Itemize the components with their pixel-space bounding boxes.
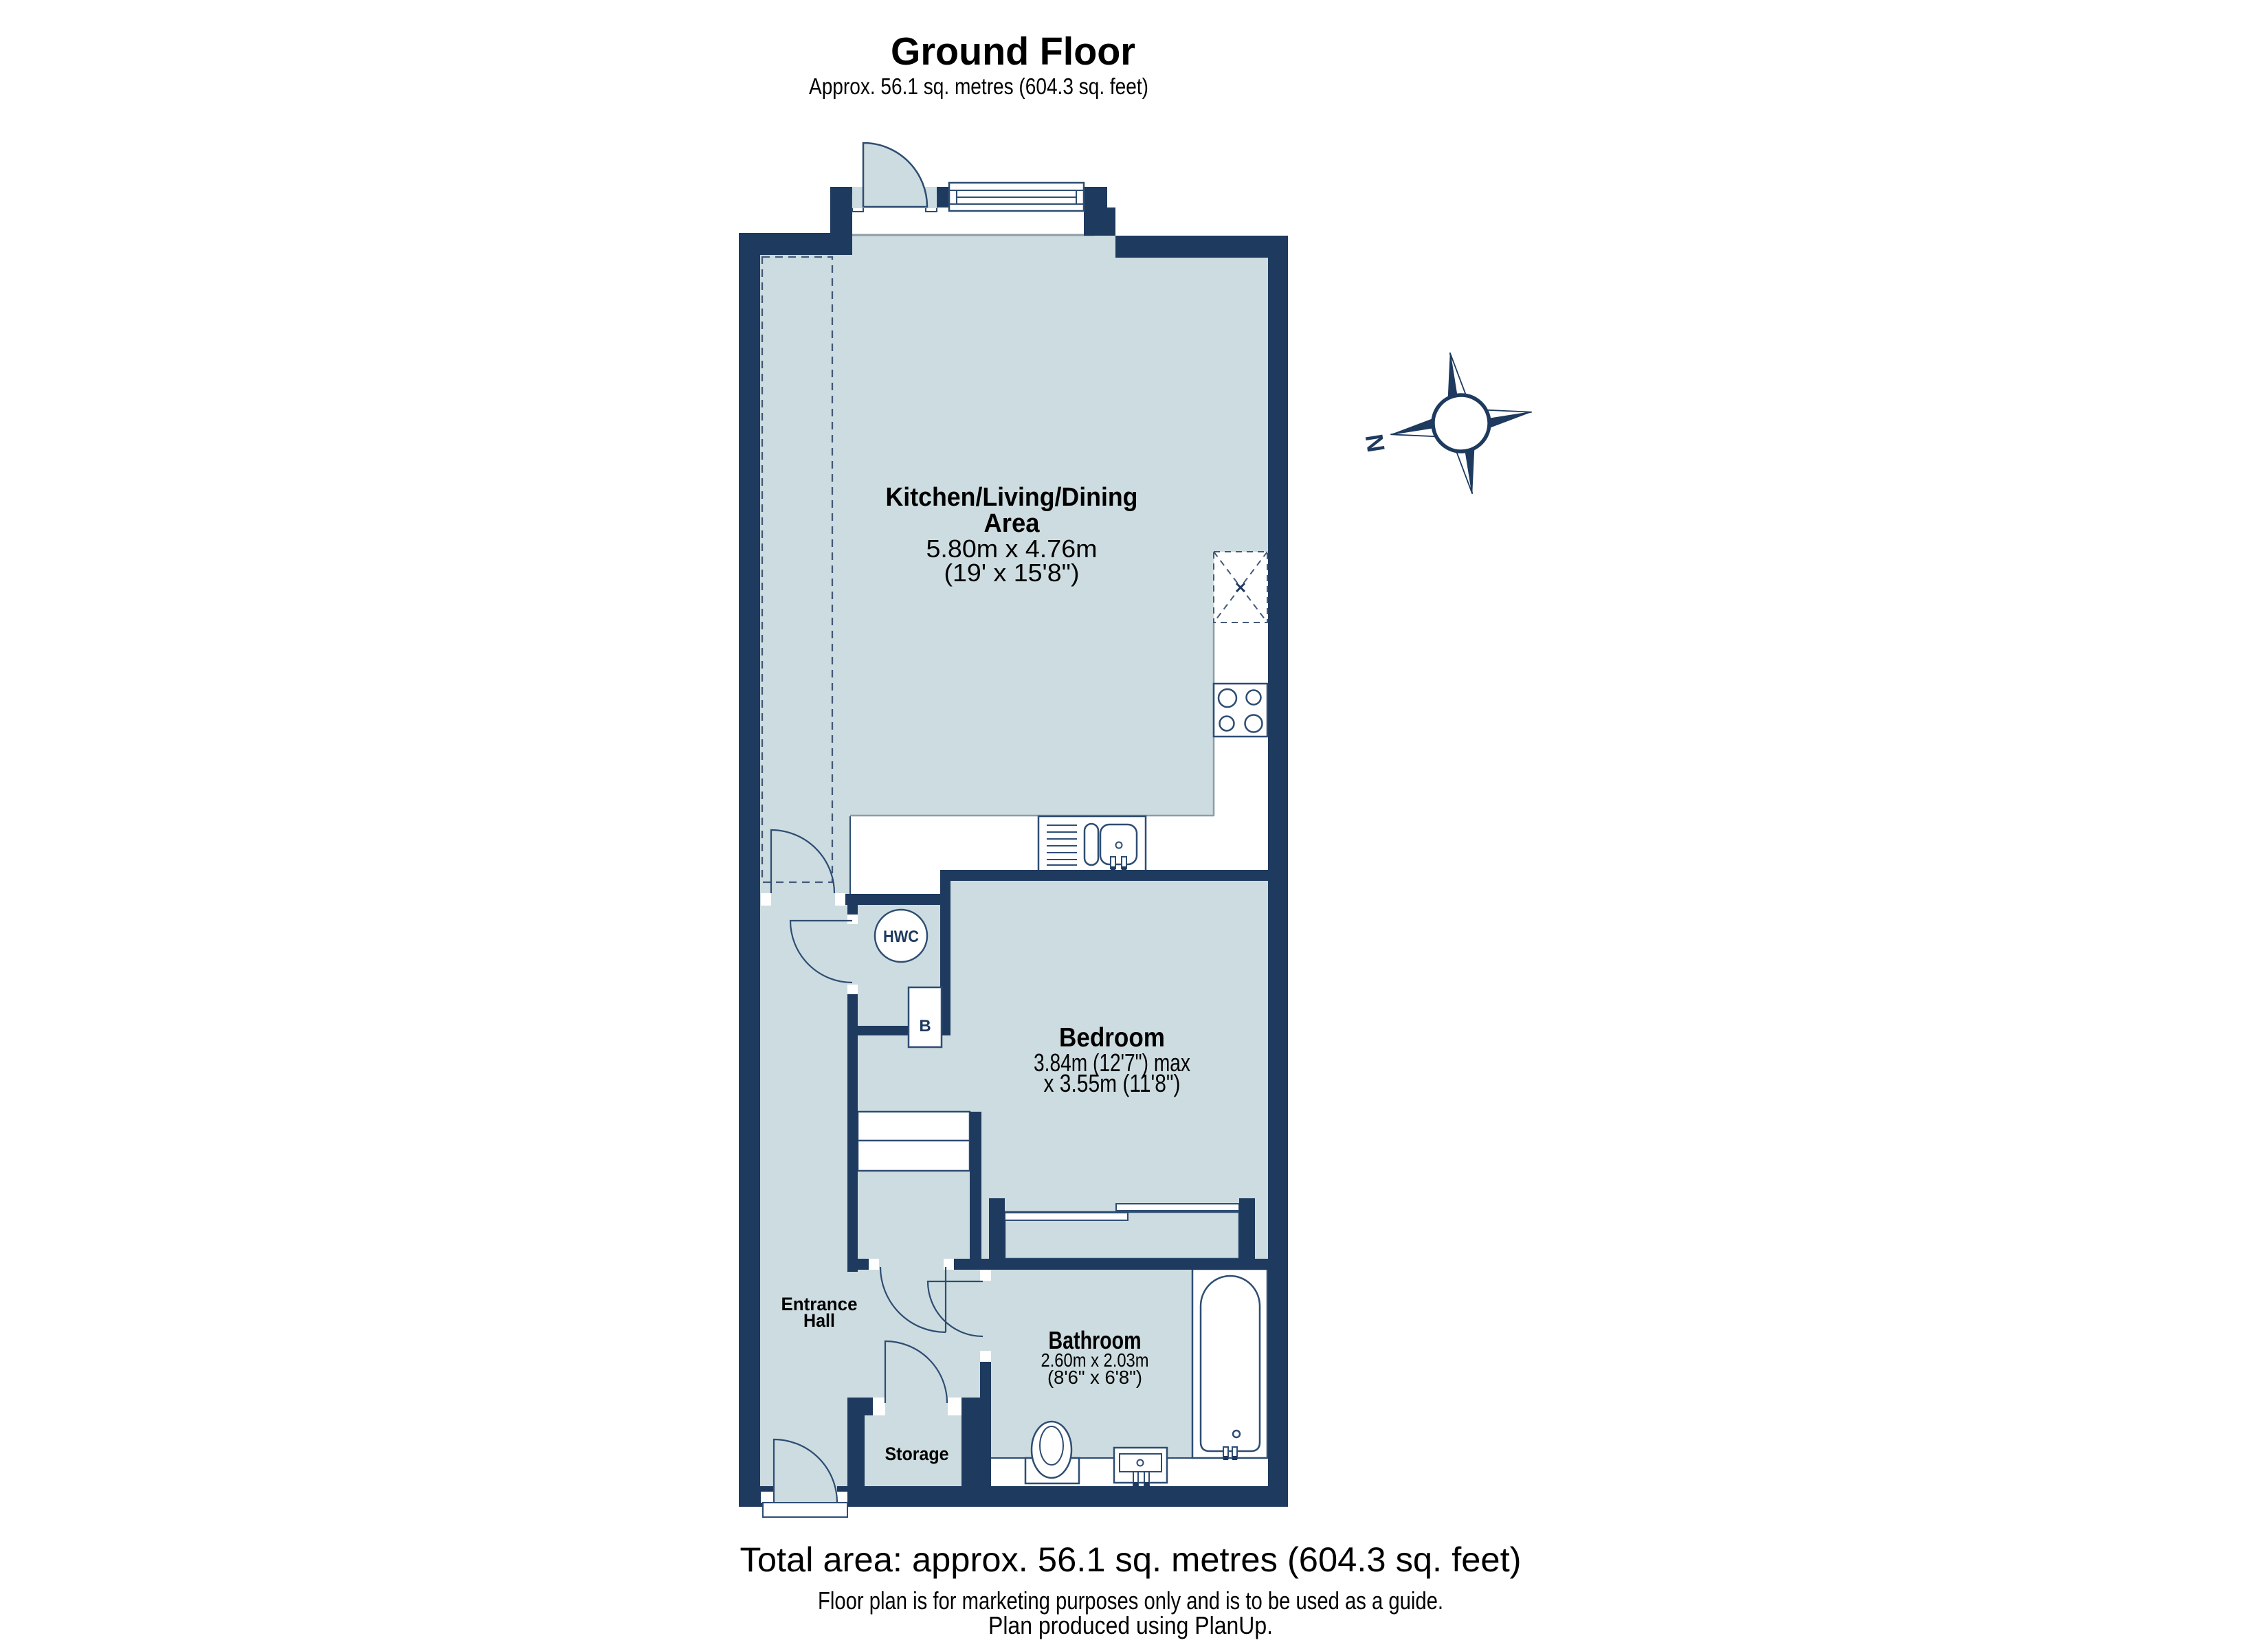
svg-text:Storage: Storage: [885, 1444, 949, 1464]
svg-text:HWC: HWC: [883, 928, 919, 946]
svg-text:Hall: Hall: [803, 1310, 835, 1331]
svg-text:Area: Area: [984, 509, 1041, 538]
svg-text:(19' x 15'8"): (19' x 15'8"): [944, 559, 1080, 587]
svg-text:B: B: [919, 1017, 931, 1035]
svg-text:(8'6" x 6'8"): (8'6" x 6'8"): [1047, 1367, 1142, 1388]
svg-text:Floor plan is for marketing pu: Floor plan is for marketing purposes onl…: [818, 1586, 1443, 1615]
svg-text:Approx. 56.1 sq. metres (604.3: Approx. 56.1 sq. metres (604.3 sq. feet): [809, 74, 1148, 99]
svg-text:Plan produced using PlanUp.: Plan produced using PlanUp.: [988, 1611, 1273, 1639]
svg-text:N: N: [1359, 432, 1390, 454]
svg-text:Ground Floor: Ground Floor: [891, 30, 1135, 74]
svg-text:Kitchen/Living/Dining: Kitchen/Living/Dining: [886, 483, 1138, 512]
svg-text:Total area: approx. 56.1 sq. m: Total area: approx. 56.1 sq. metres (604…: [740, 1540, 1522, 1579]
svg-text:x 3.55m (11'8"): x 3.55m (11'8"): [1044, 1069, 1181, 1097]
